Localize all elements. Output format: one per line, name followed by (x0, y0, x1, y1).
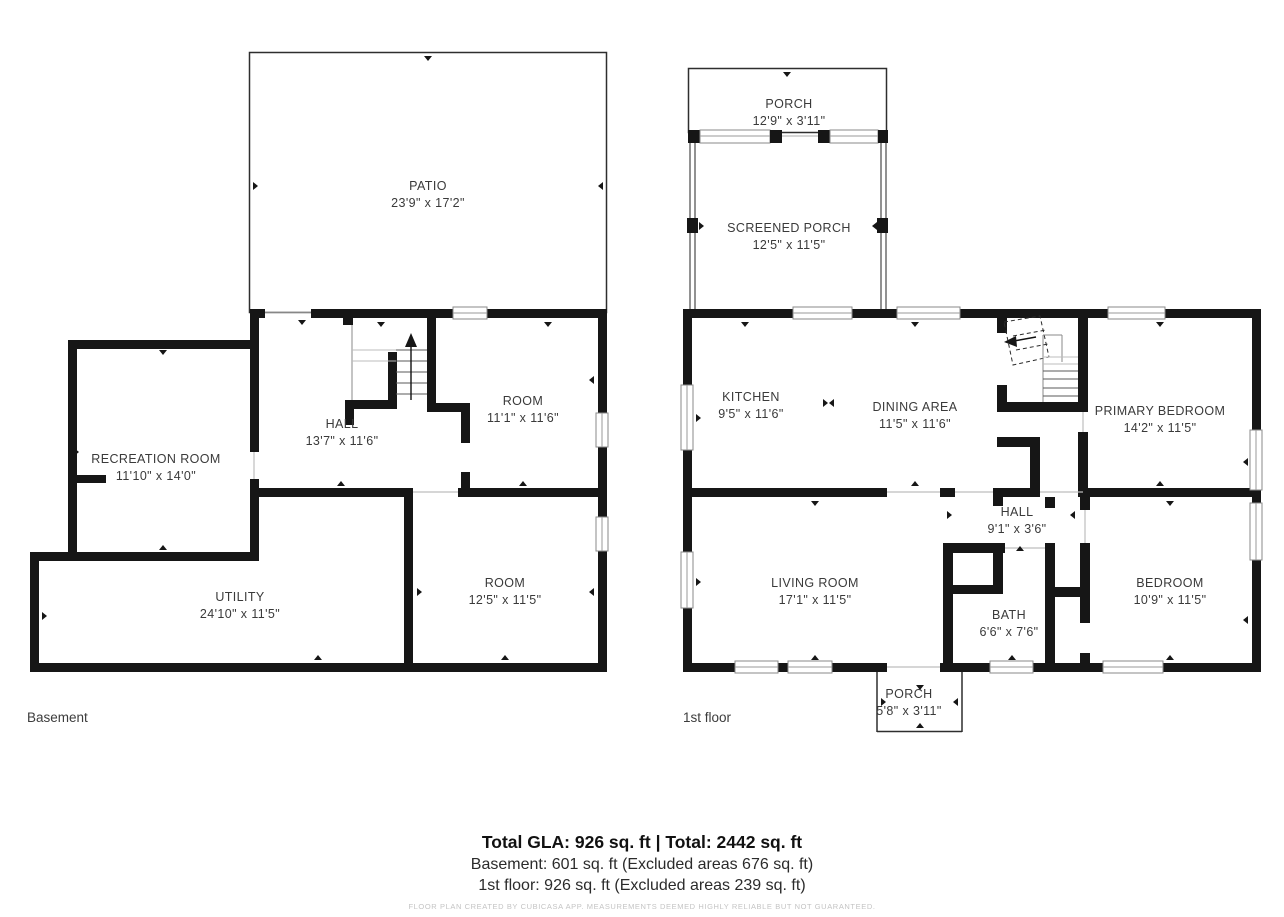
room-name-label: PRIMARY BEDROOM (1095, 404, 1226, 418)
first-floor-label: 1st floor (683, 710, 732, 725)
room-dims-label: 17'1" x 11'5" (779, 593, 852, 607)
room-dims-label: 9'1" x 3'6" (987, 522, 1046, 536)
room-name-label: PORCH (765, 97, 812, 111)
room-dims-label: 12'5" x 11'5" (753, 238, 826, 252)
room-dims-label: 11'5" x 11'6" (879, 417, 951, 431)
room-name-label: PORCH (885, 687, 932, 701)
stairs-down-arrow (1014, 337, 1036, 341)
room-dims-label: 23'9" x 17'2" (391, 196, 465, 210)
room-name-label: BATH (992, 608, 1026, 622)
area-summary: Total GLA: 926 sq. ft | Total: 2442 sq. … (0, 832, 1284, 895)
basement-walls (30, 309, 607, 672)
room-dims-label: 9'5" x 11'6" (718, 407, 783, 421)
room-dims-label: 10'9" x 11'5" (1134, 593, 1207, 607)
first-floor-walls (683, 309, 1261, 672)
first-floor-area-text: 1st floor: 926 sq. ft (Excluded areas 23… (0, 877, 1284, 895)
room-name-label: UTILITY (215, 590, 265, 604)
floor-plan-page: PATIO 23'9" x 17'2" RECREATION ROOM 11'1… (0, 0, 1284, 917)
room-dims-label: 11'10" x 14'0" (116, 469, 196, 483)
basement-plan: PATIO 23'9" x 17'2" RECREATION ROOM 11'1… (27, 53, 608, 726)
room-dims-label: 14'2" x 11'5" (1124, 421, 1197, 435)
room-name-label: BEDROOM (1136, 576, 1203, 590)
room-name-label: HALL (326, 417, 359, 431)
room-name-label: HALL (1001, 505, 1034, 519)
room-dims-label: 12'5" x 11'5" (469, 593, 542, 607)
room-dims-label: 11'1" x 11'6" (487, 411, 559, 425)
room-name-label: KITCHEN (722, 390, 780, 404)
room-dims-label: 12'9" x 3'11" (753, 114, 826, 128)
room-name-label: ROOM (485, 576, 526, 590)
first-floor-stairs (1004, 316, 1078, 402)
basement-floor-label: Basement (27, 710, 88, 725)
screened-porch-walls (687, 130, 888, 309)
room-name-label: ROOM (503, 394, 544, 408)
room-dims-label: 5'8" x 3'11" (876, 704, 941, 718)
room-dims-label: 6'6" x 7'6" (979, 625, 1038, 639)
room-name-label: SCREENED PORCH (727, 221, 851, 235)
basement-windows (453, 307, 608, 551)
room-name-label: DINING AREA (873, 400, 958, 414)
room-name-label: RECREATION ROOM (91, 452, 220, 466)
room-dims-label: 13'7" x 11'6" (306, 434, 379, 448)
room-dims-label: 24'10" x 11'5" (200, 607, 280, 621)
basement-ticks (42, 56, 603, 660)
room-name-label: PATIO (409, 179, 447, 193)
basement-area-text: Basement: 601 sq. ft (Excluded areas 676… (0, 856, 1284, 874)
room-name-label: LIVING ROOM (771, 576, 859, 590)
first-floor-plan: PORCH 12'9" x 3'11" SCREENED PORCH 12'5"… (681, 69, 1262, 733)
total-gla-text: Total GLA: 926 sq. ft | Total: 2442 sq. … (0, 832, 1284, 853)
disclaimer-text: FLOOR PLAN CREATED BY CUBICASA APP. MEAS… (0, 902, 1284, 911)
floor-plan-canvas: PATIO 23'9" x 17'2" RECREATION ROOM 11'1… (0, 0, 1284, 917)
bottom-porch-outline (877, 672, 962, 732)
